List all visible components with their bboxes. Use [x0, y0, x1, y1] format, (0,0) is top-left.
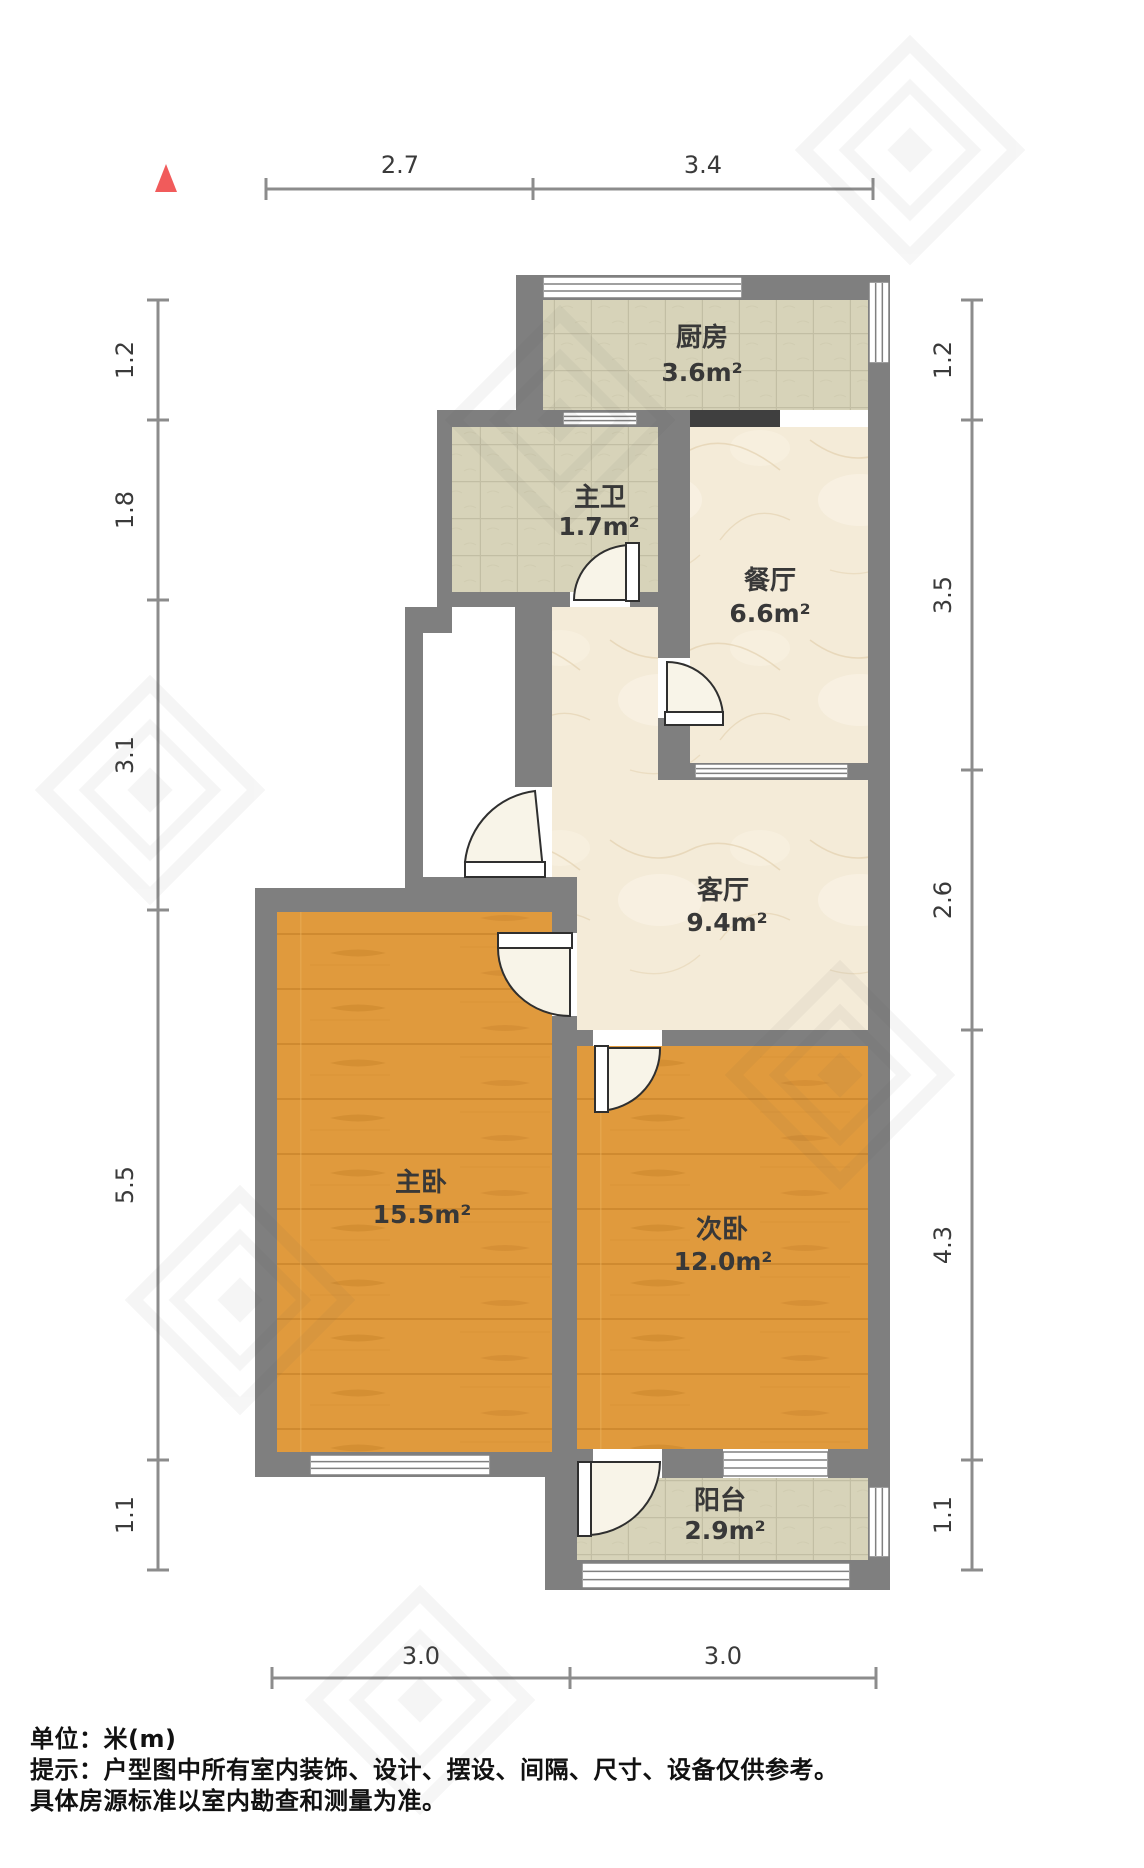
room-name-label-balcony: 阳台	[694, 1485, 746, 1516]
entry-door-arc	[465, 791, 543, 870]
room-name-label-second-bedroom: 次卧	[696, 1215, 748, 1245]
window	[582, 1563, 850, 1588]
room-area-label-master-bedroom: 15.5m²	[373, 1200, 472, 1229]
window	[723, 1452, 828, 1476]
dimension-label: 3.5	[929, 576, 957, 614]
watermark-logo	[804, 44, 1016, 256]
window	[310, 1455, 490, 1475]
wall-opening	[780, 410, 868, 427]
bath-door-leaf	[626, 543, 639, 601]
dining-door-leaf	[665, 712, 723, 725]
wall	[255, 888, 405, 912]
wall	[552, 1016, 577, 1455]
dimension-label: 3.4	[684, 151, 722, 179]
window	[869, 282, 889, 363]
dimension-label: 1.8	[111, 491, 139, 529]
room-area-label-balcony: 2.9m²	[684, 1516, 765, 1545]
wall	[577, 1030, 593, 1046]
dimension-label: 3.0	[704, 1642, 742, 1670]
wall	[662, 1449, 723, 1478]
disclaimer-notes: 单位：米(m) 提示：户型图中所有室内装饰、设计、摆设、间隔、尺寸、设备仅供参考…	[30, 1724, 1110, 1817]
dimension-label: 1.2	[929, 341, 957, 379]
second-bedroom-door-leaf	[595, 1046, 608, 1112]
balcony-door-leaf	[578, 1462, 591, 1536]
wall	[405, 877, 577, 912]
wall	[658, 412, 690, 658]
room-name-label-living: 客厅	[697, 875, 749, 906]
room-area-label-second-bedroom: 12.0m²	[674, 1247, 773, 1276]
dimension-label: 2.7	[381, 151, 419, 179]
dimension-label: 4.3	[929, 1226, 957, 1264]
room-name-label-dining: 餐厅	[744, 566, 796, 596]
room-area-label-kitchen: 3.6m²	[661, 358, 742, 387]
wall	[552, 877, 577, 933]
wall	[437, 412, 452, 607]
room-area-label-living: 9.4m²	[686, 908, 767, 937]
room-name-label-master-bedroom: 主卧	[395, 1168, 447, 1198]
dimension-label: 1.2	[111, 341, 139, 379]
master-bedroom-door-leaf	[498, 933, 572, 948]
wall	[437, 592, 570, 607]
window	[543, 277, 742, 298]
tip-note-line2: 具体房源标准以室内勘查和测量为准。	[30, 1786, 1110, 1817]
window	[869, 1487, 889, 1557]
floor-plan-canvas: 厨房3.6m²主卫1.7m²餐厅6.6m²客厅9.4m²主卧15.5m²次卧12…	[0, 0, 1144, 1868]
room-name-label-kitchen: 厨房	[676, 323, 728, 353]
wall	[515, 607, 552, 787]
room-area-label-dining: 6.6m²	[729, 599, 810, 628]
dimension-label: 1.1	[929, 1496, 957, 1534]
passage-lintel	[690, 410, 780, 427]
wall	[405, 617, 423, 890]
wall	[828, 1449, 868, 1478]
watermark-logo	[44, 684, 256, 896]
wall-opening	[423, 633, 515, 787]
dimension-label: 2.6	[929, 881, 957, 919]
dimension-label: 1.1	[111, 1496, 139, 1534]
unit-note: 单位：米(m)	[30, 1724, 1110, 1755]
wall	[868, 275, 890, 1590]
window	[695, 764, 848, 778]
dimension-label: 5.5	[111, 1166, 139, 1204]
tip-note-line1: 提示：户型图中所有室内装饰、设计、摆设、间隔、尺寸、设备仅供参考。	[30, 1755, 1110, 1786]
north-arrow-icon	[155, 164, 177, 192]
entry-door-leaf	[465, 862, 545, 877]
